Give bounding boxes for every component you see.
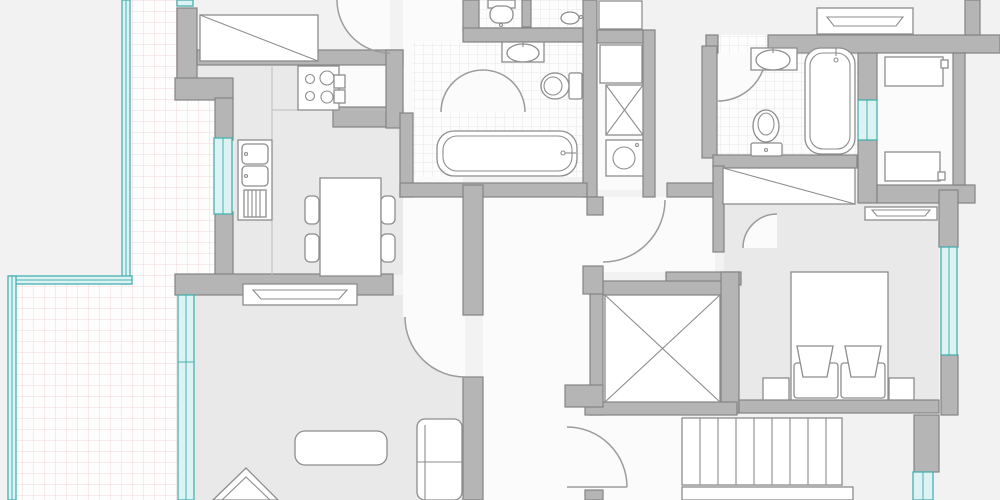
wall [768,35,1000,53]
utility-column [599,1,643,176]
pillow [845,346,881,377]
wall [702,46,717,158]
wall [565,385,603,407]
wardrobe [723,168,855,204]
chair [381,196,395,224]
wall [463,377,483,500]
toilet [751,110,782,156]
wall [643,30,655,197]
wall [177,8,197,80]
dining-table [320,178,381,276]
wall [721,272,739,413]
kitchen-window [214,138,232,214]
armchair [417,419,462,500]
double-bed [791,272,888,400]
wall [215,212,233,275]
wall [400,183,587,197]
wall [597,30,643,43]
wall [877,185,975,203]
radiator [817,8,913,34]
chair [305,234,319,262]
dish-rack [244,190,266,217]
kitchen-top-door-swing [337,0,390,53]
terrace-tiles [16,284,178,500]
wall [713,155,857,168]
cabinet-crossed [606,85,643,135]
wall [667,183,715,197]
terrace-tiles [177,100,215,274]
chair [305,196,319,224]
elevator-shaft [605,295,720,402]
wall [590,281,737,295]
nightstand [763,378,789,400]
closet [599,1,642,29]
washbasin [751,48,797,70]
wardrobe [200,15,318,61]
stair-landing [682,487,853,500]
dressing-room [723,168,855,204]
wall [585,402,737,415]
bathtub [437,131,577,176]
wall [583,0,597,197]
wall [587,197,603,215]
wall [965,0,980,35]
kitchen-sink [238,140,272,220]
washing-machine [606,140,643,176]
bathroom-2-window [858,100,877,140]
wall [939,190,958,247]
wall [585,490,603,500]
radiator [865,207,937,220]
wall [914,415,939,472]
single-bed [885,152,945,181]
stove [298,66,339,110]
wall [215,98,233,140]
wall [583,266,603,294]
radiator [243,284,357,305]
wall [522,0,531,27]
wall [953,53,965,185]
bedroom-window [941,247,957,355]
floor-plan-drawing [0,0,1000,500]
wall [713,166,724,252]
wall [463,185,483,315]
wall [858,53,877,100]
single-bed [885,57,948,86]
living-glazed-wall [178,295,194,500]
nightstand [889,378,914,400]
wall [941,355,958,415]
wall [463,0,479,32]
floor-plan [0,0,1000,500]
bathtub [805,48,855,154]
wall [739,400,939,413]
chair [381,234,395,262]
washbasin [502,42,544,62]
coffee-table [295,431,387,465]
closet [600,45,642,83]
wall [858,140,877,203]
wall [463,28,583,42]
terrace-tiles [130,0,177,284]
wall [175,78,233,100]
toilet [541,73,582,99]
pillow [797,346,833,377]
stairwell-window [913,472,933,500]
staircase [682,418,853,500]
